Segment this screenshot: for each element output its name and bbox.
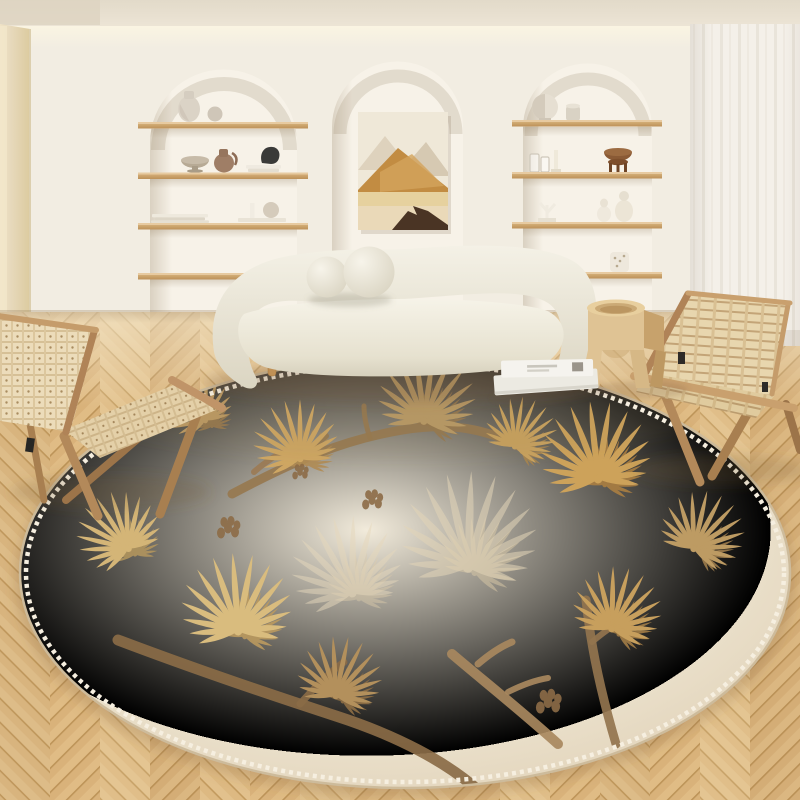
- decor-glass-cups: [530, 154, 549, 172]
- ceiling: [0, 0, 800, 26]
- sofa-ball-cushion-small: [307, 257, 348, 298]
- side-wall-left: [0, 24, 31, 322]
- decor-dotted-cup: [610, 252, 629, 272]
- sofa-ball-cushion-large: [344, 247, 395, 298]
- abstract-mountain-art: [358, 112, 451, 234]
- chair-right-hinge-right: [762, 382, 768, 392]
- decor-book-stack: [246, 165, 281, 172]
- decor-books-left: [151, 214, 209, 223]
- chair-right-hinge-left: [678, 352, 685, 364]
- decor-sphere-vase: [208, 107, 223, 122]
- living-room-scene: [0, 0, 800, 800]
- decor-small-pot: [566, 104, 580, 121]
